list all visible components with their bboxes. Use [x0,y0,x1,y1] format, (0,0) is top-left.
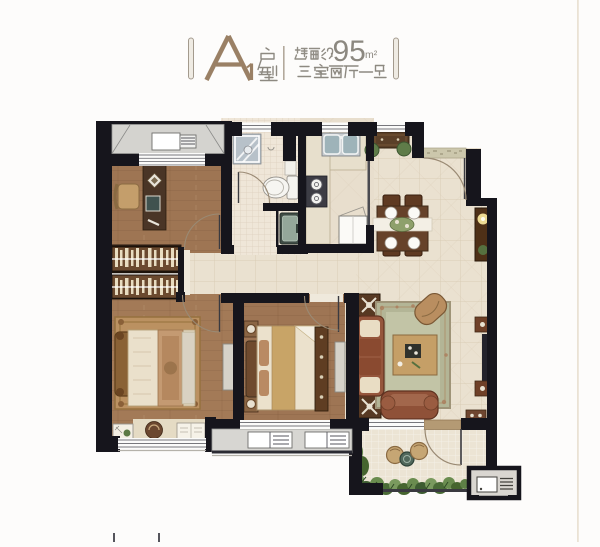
svg-text:95: 95 [333,35,366,68]
svg-text:m²: m² [365,49,378,61]
